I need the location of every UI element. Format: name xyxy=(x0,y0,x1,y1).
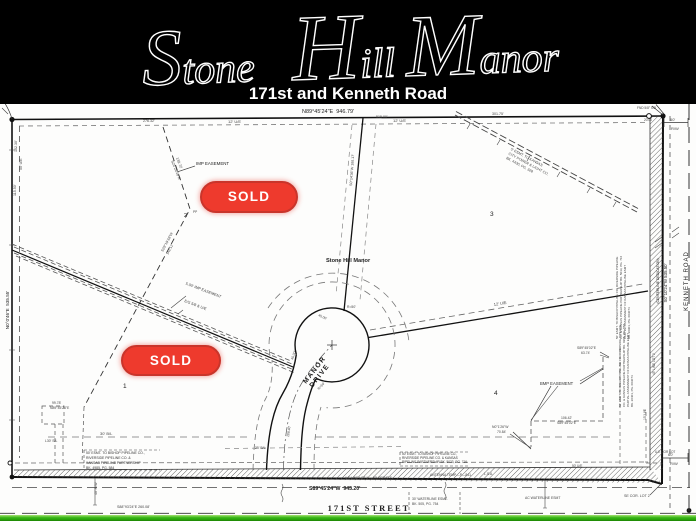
svg-text:KANSAS PIPELINE PARTNERSHIP: KANSAS PIPELINE PARTNERSHIP xyxy=(86,461,141,465)
svg-text:171st and Kenneth Road: 171st and Kenneth Road xyxy=(249,84,447,103)
svg-text:BK. 20901, PG. 003074: BK. 20901, PG. 003074 xyxy=(627,307,631,339)
svg-text:S88°93'24"E 260.08': S88°93'24"E 260.08' xyxy=(117,505,150,509)
svg-text:BK. 505, PG. 754: BK. 505, PG. 754 xyxy=(412,502,439,506)
svg-text:S89°45'02"E: S89°45'02"E xyxy=(557,421,577,425)
svg-text:RIVERSIDE PIPELINE CO. &: RIVERSIDE PIPELINE CO. & xyxy=(86,456,131,460)
svg-text:50' U/E: 50' U/E xyxy=(572,464,582,468)
svg-text:N0°0'46"E 535.55': N0°0'46"E 535.55' xyxy=(5,291,10,330)
svg-text:60': 60' xyxy=(670,117,675,122)
svg-text:2: 2 xyxy=(184,213,187,219)
svg-text:N89°45'24"E 946.79': N89°45'24"E 946.79' xyxy=(302,109,354,115)
svg-text:20.00: 20.00 xyxy=(644,118,652,122)
svg-text:BK. 20401, PG. 003074: BK. 20401, PG. 003074 xyxy=(630,375,634,407)
svg-text:70.84': 70.84' xyxy=(497,430,506,434)
svg-text:276.32': 276.32' xyxy=(143,119,155,123)
svg-text:1: 1 xyxy=(123,383,127,390)
svg-text:SE COR. LOT 2: SE COR. LOT 2 xyxy=(624,494,650,498)
svg-text:S89°45'24"W 945.20': S89°45'24"W 945.20' xyxy=(309,486,360,492)
svg-text:30' B/L: 30' B/L xyxy=(100,431,113,436)
svg-text:L.S.A.: L.S.A. xyxy=(484,472,493,476)
svg-text:N89°45'24"E: N89°45'24"E xyxy=(50,406,70,410)
svg-text:L30' S/L: L30' S/L xyxy=(45,439,57,443)
svg-text:(CENTERLINE DEDICATION): (CENTERLINE DEDICATION) xyxy=(656,258,660,303)
svg-text:4: 4 xyxy=(494,390,498,397)
svg-text:BK. 4985, PG. 584: BK. 4985, PG. 584 xyxy=(86,466,114,470)
svg-text:45' LINE LOT 2: 45' LINE LOT 2 xyxy=(652,353,656,375)
svg-text:Stone Hill Manor: Stone Hill Manor xyxy=(326,258,371,264)
svg-text:40' R/W: 40' R/W xyxy=(94,482,98,495)
svg-text:R=50': R=50' xyxy=(347,305,356,309)
svg-text:AC WATERLINE ESMT: AC WATERLINE ESMT xyxy=(525,496,560,500)
svg-text:PP: PP xyxy=(193,210,197,214)
svg-text:63.74': 63.74' xyxy=(581,351,590,355)
svg-text:FND 5/8" S/B: FND 5/8" S/B xyxy=(637,106,656,110)
svg-text:U.E COR LOT: U.E COR LOT xyxy=(655,450,675,454)
svg-text:IMP EASEMENT: IMP EASEMENT xyxy=(196,161,229,166)
svg-text:R/W: R/W xyxy=(671,126,679,131)
svg-text:S89°45'02"E: S89°45'02"E xyxy=(577,346,597,350)
svg-text:12' U/E: 12' U/E xyxy=(228,119,241,124)
svg-text:171ST STREET: 171ST STREET xyxy=(328,503,411,513)
svg-text:15' U/E: 15' U/E xyxy=(643,408,647,420)
svg-text:U.E LINE LOT 1 — 50' SESMT-F..: U.E LINE LOT 1 — 50' SESMT-F... xyxy=(345,476,394,480)
svg-text:Stone: Stone xyxy=(140,11,255,103)
svg-text:3: 3 xyxy=(490,211,494,218)
svg-text:50' ESMT. TO BISHOP PIPELINE C: 50' ESMT. TO BISHOP PIPELINE CO., xyxy=(86,451,145,455)
svg-text:515.00': 515.00' xyxy=(376,115,388,119)
svg-text:30' WATERLINE ESMT.: 30' WATERLINE ESMT. xyxy=(412,497,448,501)
svg-text:Manor: Manor xyxy=(402,0,561,96)
svg-text:115.50': 115.50' xyxy=(13,184,17,196)
svg-text:50' U/E: 50' U/E xyxy=(19,158,23,170)
svg-text:301.75': 301.75' xyxy=(492,112,504,116)
svg-text:R/W: R/W xyxy=(670,461,678,466)
svg-text:N0°1'26"W: N0°1'26"W xyxy=(492,425,509,429)
svg-text:12' U/E: 12' U/E xyxy=(393,118,406,123)
svg-text:KENNETH ROAD: KENNETH ROAD xyxy=(684,251,690,311)
svg-text:S0°10'24"W 535.50': S0°10'24"W 535.50' xyxy=(663,263,668,302)
svg-text:99.78': 99.78' xyxy=(52,401,61,405)
svg-text:106.42': 106.42' xyxy=(561,416,572,420)
svg-text:PIPELINE PARTNERSHIP BK. 5033,: PIPELINE PARTNERSHIP BK. 5033, PG. 716 xyxy=(402,460,467,464)
svg-text:BMP EASEMENT: BMP EASEMENT xyxy=(540,381,574,386)
svg-text:25' B/L: 25' B/L xyxy=(255,446,266,450)
svg-text:ANTENNA TEMP—P—841: ANTENNA TEMP—P—841 xyxy=(430,473,471,477)
